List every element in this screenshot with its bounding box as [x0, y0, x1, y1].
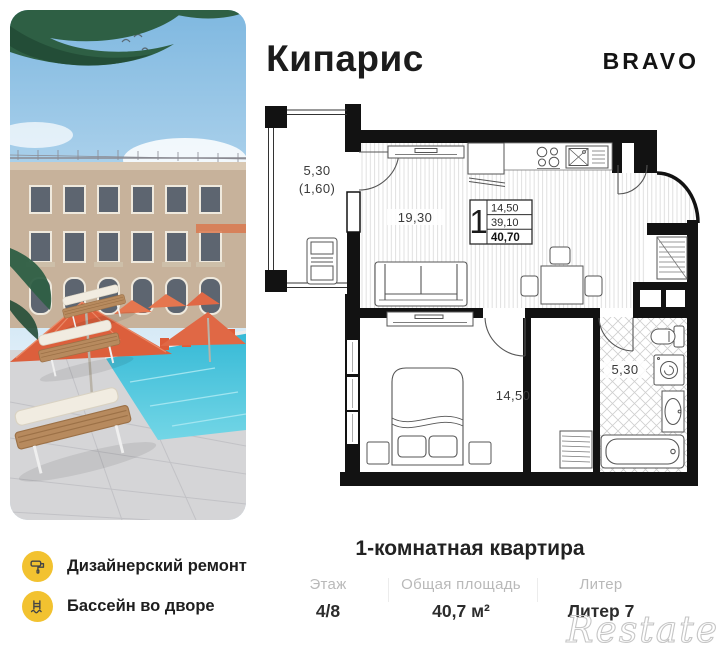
bathtub: [601, 435, 684, 468]
property-photo: [10, 10, 246, 520]
restate-watermark: Restate: [566, 610, 719, 651]
listing-card: Кипарис BRAVO: [0, 0, 725, 656]
stat-total-area: Общая площадь 40,7 м²: [386, 576, 536, 622]
sofa: [375, 262, 467, 306]
info-box-area-wo-balcony: 39,10: [491, 217, 519, 229]
living-area-label: 19,30: [398, 210, 433, 225]
kitchen-sink: [566, 146, 608, 168]
apartment-type-title: 1-комнатная квартира: [255, 537, 685, 561]
entry-closet: [657, 237, 687, 279]
balcony-reduced-area-label: (1,60): [299, 181, 335, 196]
stat-label: Литер: [526, 576, 676, 593]
feature-label: Бассейн во дворе: [67, 597, 215, 616]
property-photo-illustration: [10, 10, 246, 520]
stat-label: Общая площадь: [386, 576, 536, 593]
info-box-rooms: 1: [469, 203, 487, 240]
tv-stand: [388, 146, 464, 158]
balcony-area-label: 5,30: [304, 163, 331, 178]
bathroom-area-label: 5,30: [612, 362, 639, 377]
stat-value: 4/8: [253, 601, 403, 622]
nightstand-left: [367, 442, 389, 464]
info-box: 1 14,50 39,10 40,70: [469, 200, 532, 244]
pool-ladder-icon: [22, 591, 53, 622]
page-title: Кипарис: [250, 38, 440, 80]
bathroom-sink: [662, 391, 684, 432]
bed: [392, 368, 463, 465]
info-box-total-area: 40,70: [491, 232, 520, 244]
nightstand-right: [469, 442, 491, 464]
stat-floor: Этаж 4/8: [253, 576, 403, 622]
bedroom-area-label: 14,50: [496, 388, 531, 403]
floorplan: 1 14,50 39,10 40,70: [255, 90, 725, 490]
floorplan-drawing: 1 14,50 39,10 40,70: [255, 90, 725, 490]
brand-logo: BRAVO: [603, 48, 699, 75]
wardrobe: [387, 312, 473, 326]
feature-pool: Бассейн во дворе: [22, 591, 215, 622]
feature-label: Дизайнерский ремонт: [67, 557, 247, 576]
feature-designer-renovation: Дизайнерский ремонт: [22, 551, 247, 582]
toilet: [651, 326, 684, 347]
stat-value: 40,7 м²: [386, 601, 536, 622]
paint-roller-icon: [22, 551, 53, 582]
closet-wardrobe: [560, 431, 592, 468]
stat-label: Этаж: [253, 576, 403, 593]
info-box-living-area: 14,50: [491, 203, 519, 215]
washing-machine: [654, 355, 684, 385]
balcony-chair: [307, 238, 337, 284]
